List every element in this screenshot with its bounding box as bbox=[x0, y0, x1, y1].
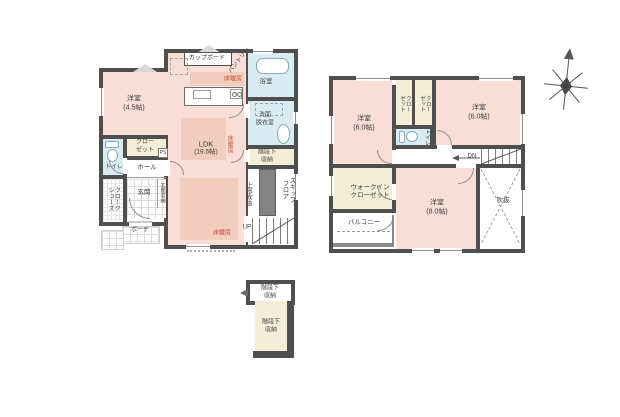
door-gap-wic bbox=[392, 184, 396, 200]
wic-left-window bbox=[329, 176, 334, 196]
roof-vent-icon bbox=[133, 64, 157, 72]
bedroom6b-right-window bbox=[520, 114, 525, 144]
compass-icon bbox=[542, 46, 592, 112]
ps-label: PS bbox=[160, 150, 167, 156]
floor-plan-canvas: カップボード パントリー 床暖房 浴室 洗面 脱衣室 洋室 (4.5帖) クロー… bbox=[0, 0, 620, 417]
toilet-tank-icon-2f bbox=[399, 131, 405, 143]
stove-burner bbox=[237, 92, 242, 97]
void-label: 吹抜 bbox=[497, 197, 510, 205]
annex-pointer-icon bbox=[240, 289, 248, 297]
down-label: DN bbox=[468, 153, 477, 161]
entrance-label: 玄関 bbox=[138, 189, 151, 197]
closet-2f-b-label: クローゼット bbox=[418, 94, 430, 115]
porch-label: ポーチ bbox=[131, 227, 149, 235]
bedroom6a-left-window bbox=[329, 116, 334, 144]
floor-heating-label-kitchen: 床暖房 bbox=[224, 76, 242, 84]
bedroom6a-label: 洋室 (6.0帖) bbox=[353, 115, 374, 133]
bedroom8-bottom-window bbox=[412, 248, 434, 253]
wall bbox=[333, 164, 396, 168]
floor-heating-label-south: 床暖房 bbox=[213, 230, 231, 238]
washbasin-icon bbox=[277, 124, 290, 144]
line-overlay bbox=[0, 0, 620, 417]
bedroom45-window bbox=[99, 88, 104, 116]
wall bbox=[248, 165, 294, 169]
kitchen-sink bbox=[193, 90, 211, 99]
entrance-storage-label: 玄関収納 bbox=[159, 180, 164, 206]
wall bbox=[430, 129, 436, 145]
wall bbox=[248, 97, 294, 101]
bedroom6b-label: 洋室 (6.0帖) bbox=[468, 104, 489, 122]
bathtub-icon bbox=[256, 58, 289, 74]
stove-icon bbox=[230, 89, 242, 99]
skip-floor-label: スキップフロア bbox=[280, 176, 294, 204]
bedroom8-label: 洋室 (8.0帖) bbox=[426, 199, 447, 217]
bedroom6a-top-window bbox=[356, 76, 390, 81]
ldk-label: LDK (19.5帖) bbox=[194, 139, 217, 157]
closet-2f-a-label: クローゼット bbox=[398, 94, 410, 115]
stairs-2f bbox=[481, 149, 521, 164]
up-label: UP bbox=[243, 224, 251, 232]
void-right-window bbox=[520, 190, 525, 216]
door-gap-washroom bbox=[244, 104, 250, 118]
door-gap-bedroom6b bbox=[437, 145, 452, 149]
toilet-bowl-icon-2f bbox=[406, 131, 418, 142]
bath-label: 浴室 bbox=[260, 78, 273, 86]
balcony-label: バルコニー bbox=[348, 219, 380, 227]
wall bbox=[103, 175, 123, 179]
skip-floor-steps bbox=[259, 169, 276, 216]
washroom-back-door bbox=[293, 112, 298, 124]
toilet-2f-label: トイレ bbox=[423, 128, 429, 146]
wall bbox=[392, 145, 521, 149]
wic-label: ウォークイン クローゼット bbox=[351, 184, 390, 200]
shoes-closet-label: シューズクローク bbox=[107, 185, 120, 213]
bedroom8-bottom-window2 bbox=[440, 248, 462, 253]
washroom-label: 洗面 脱衣室 bbox=[256, 113, 274, 128]
door-gap-storage bbox=[244, 150, 250, 162]
bedroom45-label: 洋室 (4.5帖) bbox=[123, 95, 144, 113]
wall bbox=[123, 174, 127, 222]
entrance-door-sill bbox=[129, 220, 152, 224]
wall bbox=[476, 164, 521, 168]
void-above-label: 上部吹抜 bbox=[245, 179, 251, 209]
annex-bottom-label: 階段下 収納 bbox=[262, 320, 280, 335]
wall bbox=[412, 80, 415, 125]
bath-window bbox=[253, 49, 273, 54]
balcony-rail bbox=[333, 243, 394, 247]
cupboard-label: カップボード bbox=[189, 55, 225, 63]
entrance-step-line bbox=[127, 177, 166, 178]
balcony-dashed-line bbox=[337, 231, 390, 232]
toilet-tank-icon bbox=[105, 141, 119, 148]
wall bbox=[103, 135, 168, 139]
stairs-1f bbox=[252, 218, 294, 244]
entrance-storage-wall bbox=[157, 179, 158, 208]
annex-wall-bottom bbox=[253, 351, 294, 358]
wall bbox=[248, 145, 294, 149]
understair-storage-1f-label: 階段下 収納 bbox=[258, 150, 276, 165]
toilet-1f-label: トイレ bbox=[105, 164, 123, 172]
closet-1f-label: クロー ゼット bbox=[136, 140, 154, 155]
wall bbox=[333, 209, 392, 213]
ldk-south-window bbox=[186, 244, 210, 249]
floor-heating-label-center: 床暖房 bbox=[226, 133, 232, 155]
hall-label: ホール bbox=[137, 164, 157, 172]
wall bbox=[476, 166, 480, 249]
refrigerator-space bbox=[170, 58, 188, 75]
annex-wall-right bbox=[287, 301, 294, 358]
annex-top-label: 階段下 収納 bbox=[261, 286, 279, 301]
door-gap-bedroom6a bbox=[392, 150, 396, 164]
deck-edge-dots bbox=[187, 250, 235, 252]
approach-floor bbox=[101, 230, 124, 250]
bedroom6b-top-window bbox=[479, 76, 513, 81]
